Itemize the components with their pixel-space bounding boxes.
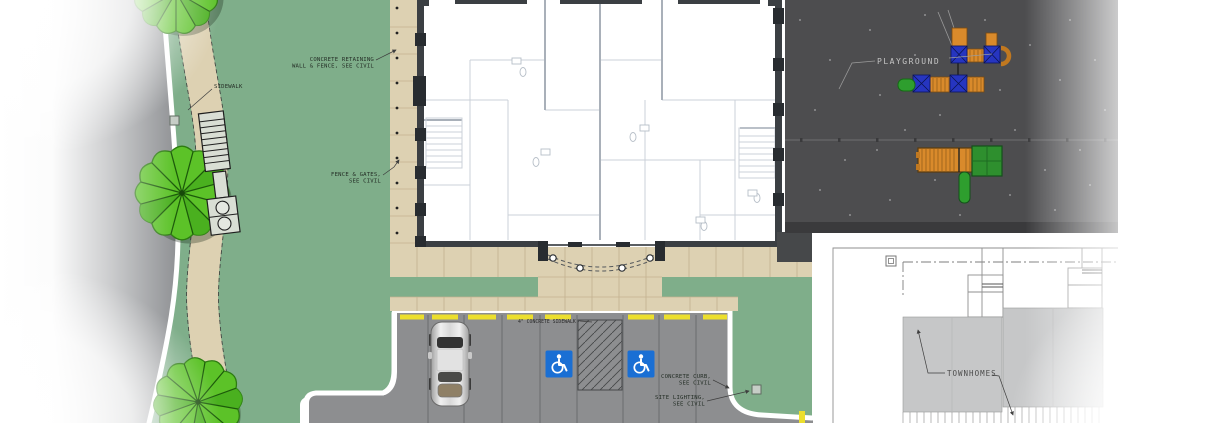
accessible-parking-icon xyxy=(546,351,573,378)
playground-label: PLAYGROUND xyxy=(877,57,940,66)
svg-text:SEE CIVIL: SEE CIVIL xyxy=(673,402,706,408)
entry-column xyxy=(577,265,583,271)
building-se-corner xyxy=(777,232,812,262)
townhomes-sheet: TOWNHOMES xyxy=(833,248,1118,423)
entry-column xyxy=(619,265,625,271)
playground-area: PLAYGROUND xyxy=(785,0,1118,233)
site-light-icon xyxy=(170,116,179,125)
site-light-icon xyxy=(886,256,896,266)
playground-edge-band xyxy=(785,222,1118,233)
svg-text:FENCE & GATES,: FENCE & GATES, xyxy=(331,172,381,178)
svg-text:CONCRETE RETAINING: CONCRETE RETAINING xyxy=(310,57,375,63)
townhome-roofs xyxy=(903,308,1103,412)
site-light-icon xyxy=(752,385,761,394)
playground-asphalt xyxy=(785,0,1118,233)
svg-text:4" CONCRETE SIDEWALK: 4" CONCRETE SIDEWALK xyxy=(518,319,576,325)
svg-text:SEE CIVIL: SEE CIVIL xyxy=(679,381,712,387)
svg-text:CONCRETE CURB,: CONCRETE CURB, xyxy=(661,374,711,380)
svg-text:SITE LIGHTING,: SITE LIGHTING, xyxy=(655,395,705,401)
stair-landing xyxy=(213,171,229,198)
svg-text:SEE CIVIL: SEE CIVIL xyxy=(349,179,382,185)
site-plan-rendering: PLAYGROUND TOWNHOMES xyxy=(0,0,1210,423)
building xyxy=(396,0,812,271)
sidewalk-label: SIDEWALK xyxy=(214,84,243,90)
access-aisle-hatch xyxy=(578,320,622,390)
svg-text:WALL & FENCE, SEE CIVIL: WALL & FENCE, SEE CIVIL xyxy=(292,64,374,70)
lawn-strip-west xyxy=(392,277,538,297)
parked-car-icon xyxy=(428,322,472,406)
slide-arm xyxy=(898,79,915,91)
accessible-parking-icon xyxy=(628,351,655,378)
entry-column xyxy=(647,255,653,261)
entry-column xyxy=(550,255,556,261)
townhomes-label: TOWNHOMES xyxy=(947,369,997,378)
